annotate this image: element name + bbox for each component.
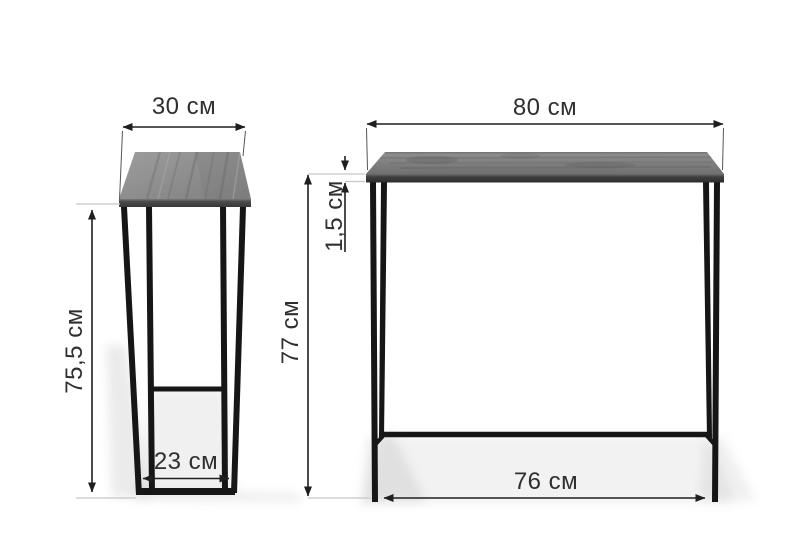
- extension-line: [243, 131, 246, 156]
- extension-line: [367, 128, 368, 170]
- dimension-diagram: 30 см 75,5 см 23 см: [0, 0, 800, 560]
- leg: [379, 183, 387, 439]
- diagram-stage: 30 см 75,5 см 23 см: [0, 0, 800, 560]
- dimension-label-thickness: 1,5 см: [321, 180, 348, 252]
- dimension-label-base-width: 76 см: [514, 468, 578, 495]
- extension-line: [723, 128, 724, 170]
- tabletop-front-edge: [366, 174, 724, 183]
- leg: [703, 183, 712, 439]
- dimension-label-side-width: 30 см: [152, 93, 216, 120]
- dimension-label-side-height: 75,5 см: [61, 308, 88, 393]
- extension-line: [120, 131, 123, 200]
- dimension-label-base-depth: 23 см: [154, 448, 218, 475]
- leg: [231, 207, 246, 493]
- dimension-label-front-height: 77 см: [277, 300, 304, 364]
- tabletop-front-edge: [119, 199, 251, 207]
- dimension-label-front-width: 80 см: [513, 94, 577, 121]
